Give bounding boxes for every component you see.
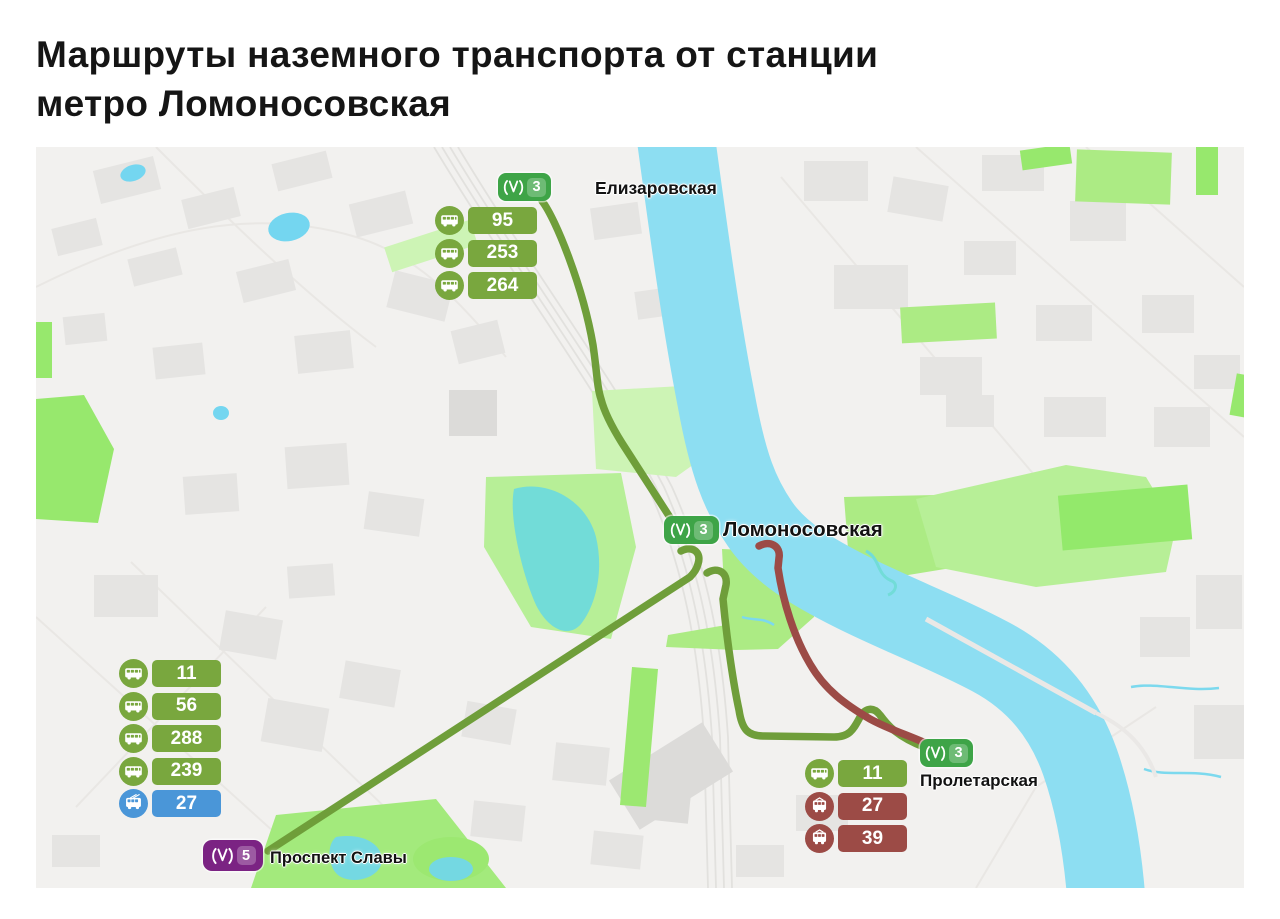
route-group-proletarskaya: 11 27 39: [805, 760, 907, 858]
route-number-badge: 288: [152, 725, 221, 752]
route-number-badge: 11: [838, 760, 907, 787]
route-number-badge: 95: [468, 207, 537, 234]
tram-icon: [805, 792, 834, 821]
route-row: 27: [805, 793, 907, 820]
page-title: Маршруты наземного транспорта от станции…: [36, 30, 1236, 128]
route-row: 239: [119, 758, 221, 785]
route-row: 95: [435, 207, 537, 234]
bus-icon: [435, 271, 464, 300]
route-row: 56: [119, 693, 221, 720]
route-row: 11: [805, 760, 907, 787]
route-row: 11: [119, 660, 221, 687]
route-number-badge: 264: [468, 272, 537, 299]
route-group-prospekt-slavy: 11 56 288 239 27: [119, 660, 221, 823]
route-group-elizarovskaya: 95 253 264: [435, 207, 537, 305]
metro-line-number: 3: [527, 178, 546, 197]
page-title-line2: метро Ломоносовская: [36, 79, 1236, 128]
metro-logo-icon: [503, 179, 524, 196]
route-row: 253: [435, 240, 537, 267]
route-number-badge: 39: [838, 825, 907, 852]
metro-line-number: 3: [949, 744, 968, 763]
station-label-proletarskaya: Пролетарская: [920, 771, 1038, 791]
trolleybus-icon: [119, 789, 148, 818]
station-label-lomonosovskaya: Ломоносовская: [723, 518, 883, 542]
station-label-elizarovskaya: Елизаровская: [595, 178, 717, 199]
metro-line-number: 5: [237, 846, 256, 865]
bus-icon: [435, 206, 464, 235]
metro-line-number: 3: [694, 521, 713, 540]
metro-badge-prospekt-slavy: 5: [203, 840, 263, 871]
metro-logo-icon: [670, 522, 691, 539]
route-number-badge: 56: [152, 693, 221, 720]
bus-icon: [119, 724, 148, 753]
metro-logo-icon: [925, 745, 946, 762]
page-title-line1: Маршруты наземного транспорта от станции: [36, 30, 1236, 79]
route-number-badge: 253: [468, 240, 537, 267]
station-label-prospekt-slavy: Проспект Славы: [270, 849, 407, 868]
route-number-badge: 27: [838, 793, 907, 820]
route-row: 27: [119, 790, 221, 817]
tram-icon: [805, 824, 834, 853]
bus-icon: [119, 692, 148, 721]
metro-badge-lomonosovskaya: 3: [664, 516, 719, 544]
metro-badge-elizarovskaya: 3: [498, 173, 551, 201]
route-row: 264: [435, 272, 537, 299]
route-number-badge: 11: [152, 660, 221, 687]
route-row: 288: [119, 725, 221, 752]
bus-icon: [119, 757, 148, 786]
map: 3 Елизаровская 95 253 264 3 Ломоносовска…: [36, 147, 1244, 888]
route-row: 39: [805, 825, 907, 852]
bus-icon: [805, 759, 834, 788]
route-number-badge: 239: [152, 758, 221, 785]
metro-logo-icon: [211, 847, 234, 865]
metro-badge-proletarskaya: 3: [920, 739, 973, 767]
bus-icon: [119, 659, 148, 688]
bus-icon: [435, 239, 464, 268]
route-number-badge: 27: [152, 790, 221, 817]
